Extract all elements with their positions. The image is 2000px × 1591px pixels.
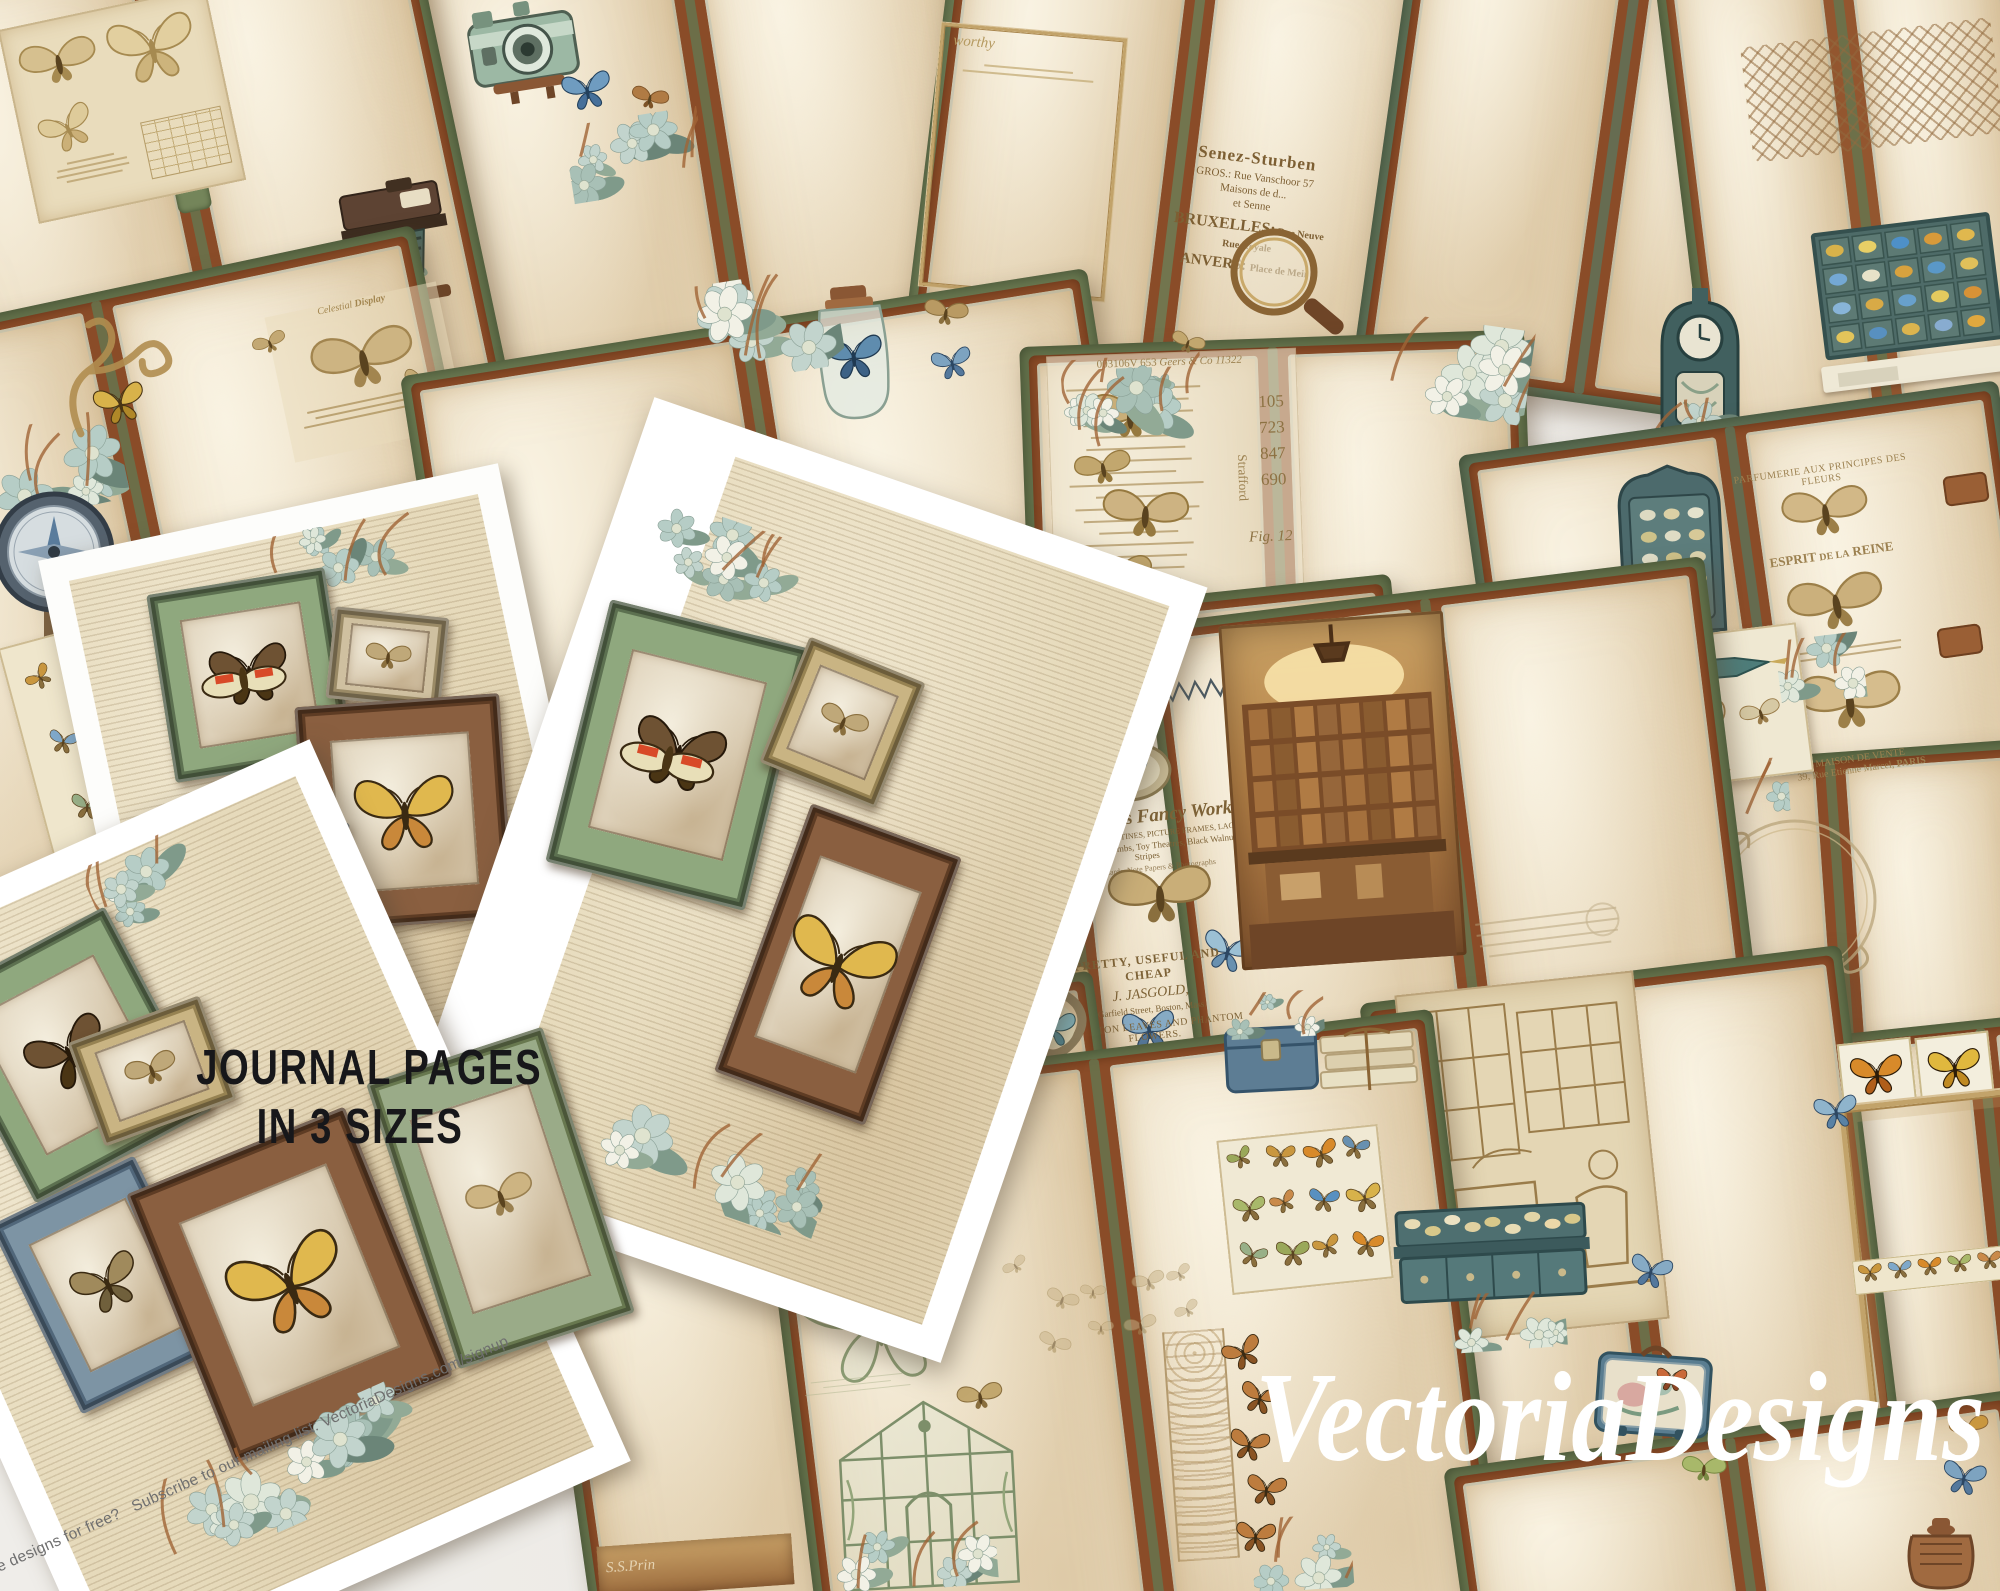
svg-text:VectoriaDesigns: VectoriaDesigns: [1255, 1346, 1985, 1488]
